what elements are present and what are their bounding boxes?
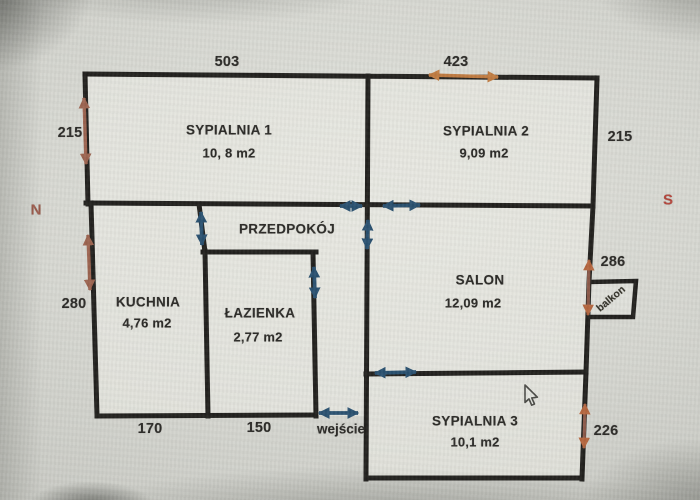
compass-north-label: N <box>31 202 42 219</box>
compass-south-label: S <box>663 192 673 209</box>
dimension-286-arrow-icon <box>588 260 589 315</box>
dimension-label-286: 286 <box>601 254 626 270</box>
room-label-przedpokoj: PRZEDPOKÓJ <box>239 222 335 237</box>
dimension-label-150: 150 <box>247 420 272 436</box>
room-area-kuchnia: 4,76 m2 <box>122 316 171 331</box>
dimension-label-280: 280 <box>62 296 87 312</box>
room-label-lazienka: ŁAZIENKA <box>225 306 296 321</box>
dimension-280-arrow-icon <box>88 235 90 290</box>
dimension-215-arrow-icon <box>84 98 86 164</box>
room-label-sypialnia-3: SYPIALNIA 3 <box>432 414 518 429</box>
room-label-sypialnia-1: SYPIALNIA 1 <box>186 123 272 138</box>
dimension-226-arrow-icon <box>584 404 585 448</box>
door-bedroom2-arrow-icon <box>383 205 420 206</box>
dimension-label-503: 503 <box>215 54 240 70</box>
floor-plan-photo: 503 423 215 215 280 286 226 170 150 N S … <box>0 0 700 500</box>
wall-bathroom-left <box>205 251 208 416</box>
room-area-sypialnia-1: 10, 8 m2 <box>203 146 256 161</box>
wall-middle-horizontal <box>86 203 593 206</box>
wall-central <box>366 76 368 479</box>
door-bedroom3-arrow-icon <box>375 372 416 373</box>
room-area-salon: 12,09 m2 <box>445 296 502 311</box>
room-label-salon: SALON <box>456 273 505 288</box>
room-area-lazienka: 2,77 m2 <box>233 330 282 345</box>
room-label-kuchnia: KUCHNIA <box>116 295 180 310</box>
door-bathroom-arrow-icon <box>314 267 315 298</box>
dimension-label-226: 226 <box>594 423 619 439</box>
room-area-sypialnia-2: 9,09 m2 <box>459 146 508 161</box>
room-area-sypialnia-3: 10,1 m2 <box>450 435 499 450</box>
door-kitchen-arrow-icon <box>201 212 202 245</box>
dimension-label-215-left: 215 <box>58 125 83 141</box>
dimension-423-arrow-icon <box>429 75 498 77</box>
dimension-label-423: 423 <box>444 54 469 70</box>
entrance-label: wejście <box>317 422 365 437</box>
dimension-label-170: 170 <box>138 421 163 437</box>
door-hall-salon-arrow-icon <box>367 220 368 249</box>
floor-plan: 503 423 215 215 280 286 226 170 150 N S … <box>0 0 700 500</box>
room-label-sypialnia-2: SYPIALNIA 2 <box>443 124 529 139</box>
dimension-label-215-right: 215 <box>608 129 633 145</box>
